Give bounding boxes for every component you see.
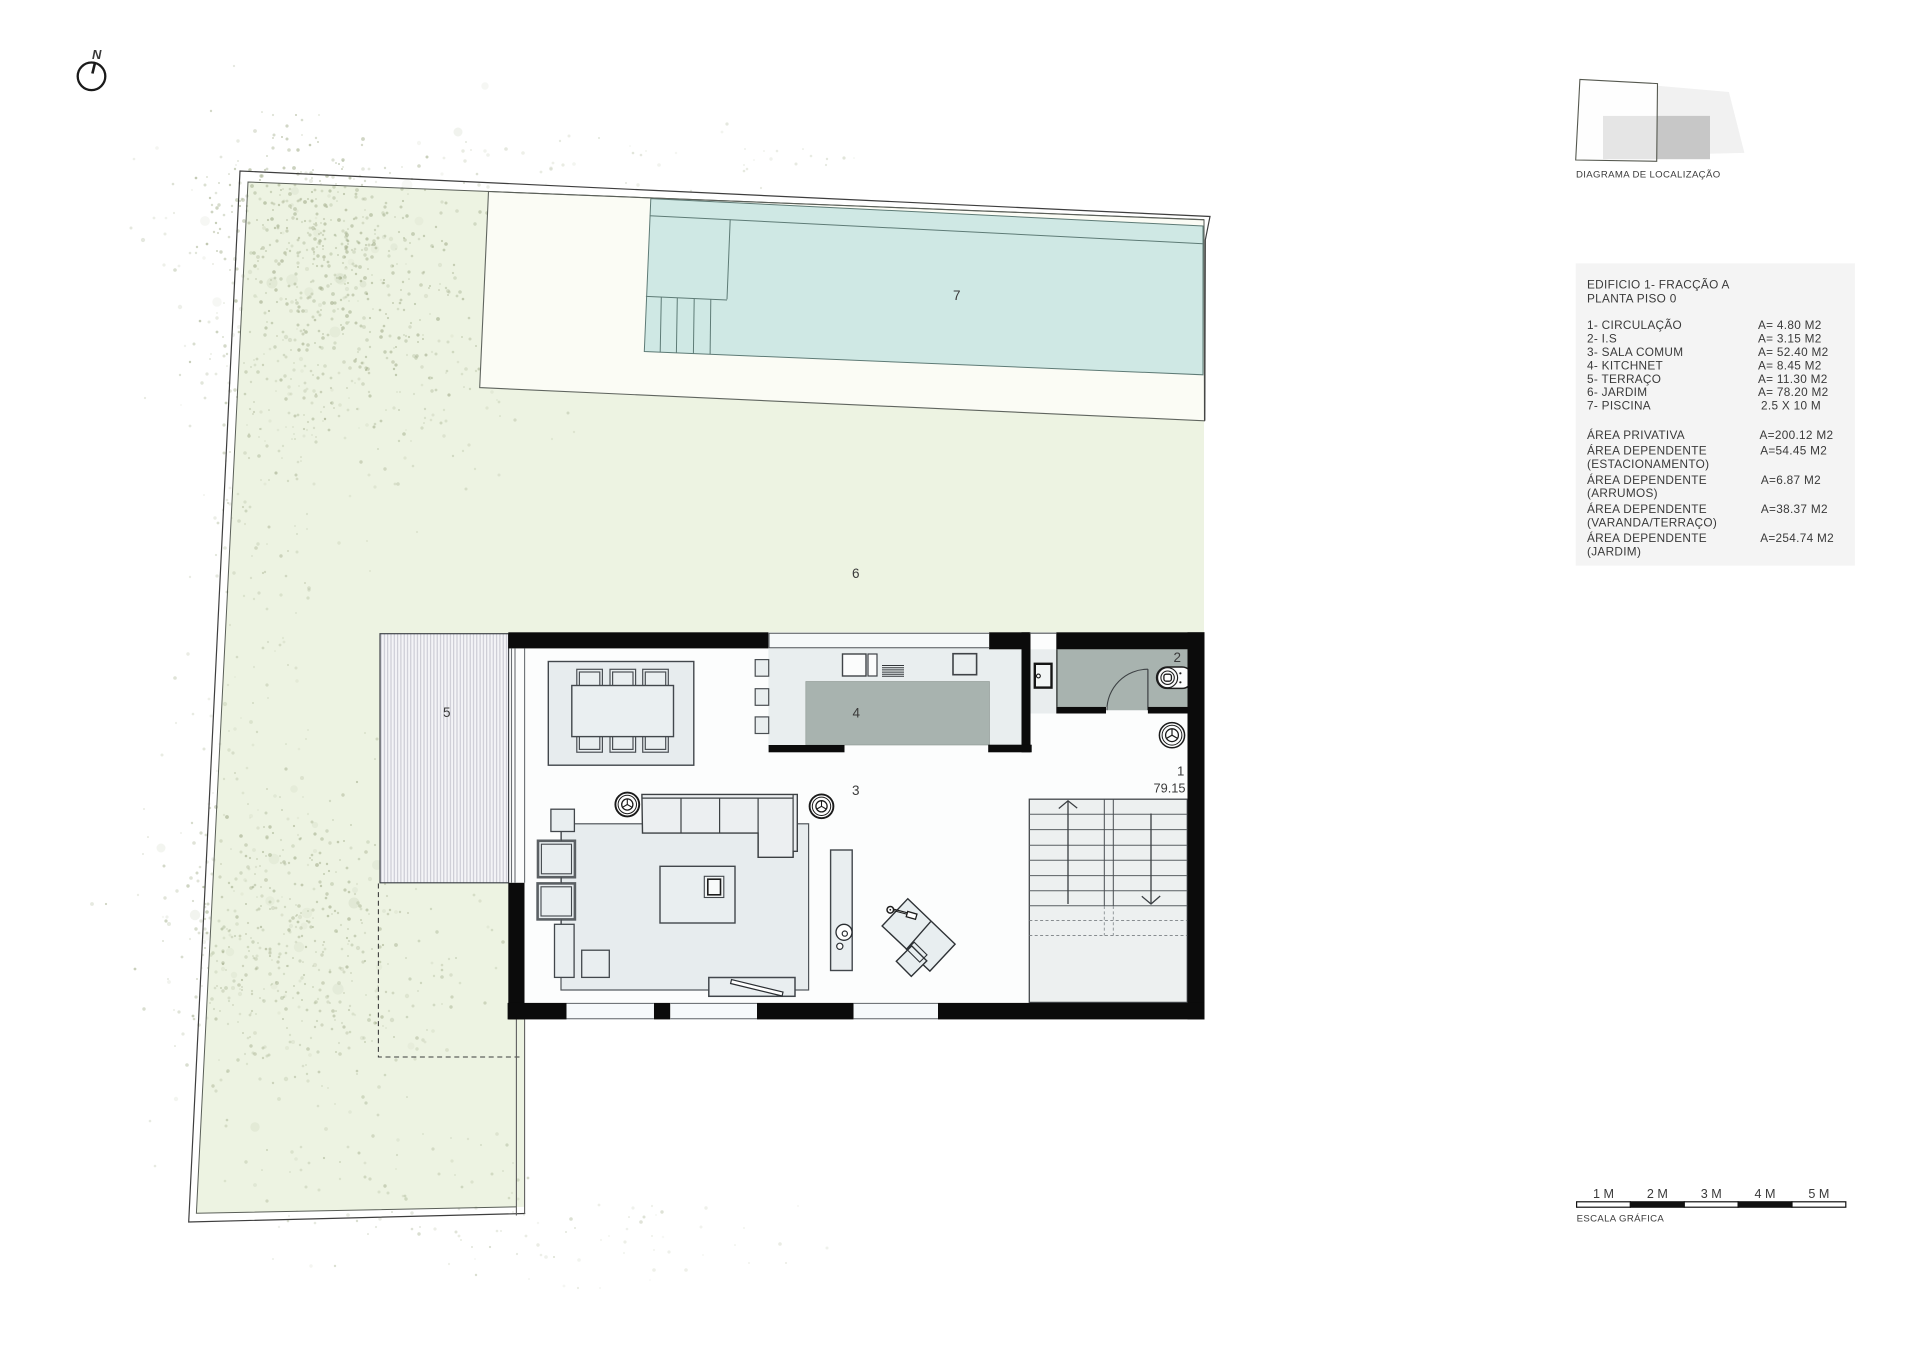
- svg-text:2: 2: [1174, 650, 1182, 665]
- svg-text:(ESTACIONAMENTO): (ESTACIONAMENTO): [1587, 457, 1709, 471]
- svg-text:6: 6: [852, 566, 860, 581]
- svg-text:N: N: [92, 47, 102, 62]
- svg-text:EDIFICIO 1- FRACÇÃO A: EDIFICIO 1- FRACÇÃO A: [1587, 278, 1730, 292]
- svg-text:5 M: 5 M: [1808, 1187, 1829, 1201]
- svg-text:A= 52.40 M2: A= 52.40 M2: [1758, 345, 1829, 359]
- svg-text:2- I.S: 2- I.S: [1587, 332, 1617, 346]
- svg-text:ESCALA GRÁFICA: ESCALA GRÁFICA: [1577, 1214, 1665, 1225]
- svg-text:A= 4.80 M2: A= 4.80 M2: [1758, 318, 1822, 332]
- svg-text:2 M: 2 M: [1647, 1187, 1668, 1201]
- svg-text:(VARANDA/TERRAÇO): (VARANDA/TERRAÇO): [1587, 515, 1717, 529]
- svg-text:DIAGRAMA DE LOCALIZAÇÃO: DIAGRAMA DE LOCALIZAÇÃO: [1576, 170, 1721, 181]
- svg-text:2.5 X 10 M: 2.5 X 10 M: [1761, 399, 1821, 413]
- svg-text:ÁREA DEPENDENTE: ÁREA DEPENDENTE: [1587, 531, 1707, 545]
- svg-text:1 M: 1 M: [1593, 1187, 1614, 1201]
- svg-text:79.15: 79.15: [1153, 780, 1185, 795]
- svg-text:ÁREA DEPENDENTE: ÁREA DEPENDENTE: [1587, 473, 1707, 487]
- svg-text:A=200.12 M2: A=200.12 M2: [1760, 428, 1834, 442]
- svg-text:A=254.74 M2: A=254.74 M2: [1760, 531, 1834, 545]
- svg-text:PLANTA PISO 0: PLANTA PISO 0: [1587, 292, 1677, 306]
- svg-text:4: 4: [853, 706, 861, 721]
- svg-text:7: 7: [953, 288, 961, 303]
- svg-text:5: 5: [443, 705, 451, 720]
- svg-text:3- SALA COMUM: 3- SALA COMUM: [1587, 345, 1683, 359]
- svg-text:A= 8.45 M2: A= 8.45 M2: [1758, 358, 1822, 372]
- svg-text:ÁREA DEPENDENTE: ÁREA DEPENDENTE: [1587, 444, 1707, 458]
- svg-text:ÁREA PRIVATIVA: ÁREA PRIVATIVA: [1587, 428, 1685, 442]
- svg-text:A= 11.30 M2: A= 11.30 M2: [1758, 372, 1828, 386]
- svg-text:A= 78.20 M2: A= 78.20 M2: [1758, 385, 1829, 399]
- svg-text:7- PISCINA: 7- PISCINA: [1587, 399, 1651, 413]
- svg-text:ÁREA DEPENDENTE: ÁREA DEPENDENTE: [1587, 502, 1707, 516]
- svg-text:(JARDIM): (JARDIM): [1587, 545, 1641, 559]
- svg-text:1: 1: [1177, 764, 1184, 779]
- svg-text:3 M: 3 M: [1701, 1187, 1722, 1201]
- svg-text:4- KITCHNET: 4- KITCHNET: [1587, 358, 1663, 372]
- svg-text:4 M: 4 M: [1755, 1187, 1776, 1201]
- svg-text:A=38.37 M2: A=38.37 M2: [1761, 502, 1828, 516]
- svg-text:3: 3: [852, 783, 860, 798]
- svg-text:(ARRUMOS): (ARRUMOS): [1587, 486, 1658, 500]
- svg-text:6- JARDIM: 6- JARDIM: [1587, 385, 1647, 399]
- svg-text:A=6.87 M2: A=6.87 M2: [1761, 473, 1821, 487]
- svg-text:1- CIRCULAÇÃO: 1- CIRCULAÇÃO: [1587, 318, 1682, 332]
- svg-text:A=54.45 M2: A=54.45 M2: [1760, 444, 1827, 458]
- svg-text:A= 3.15 M2: A= 3.15 M2: [1758, 332, 1822, 346]
- svg-text:5- TERRAÇO: 5- TERRAÇO: [1587, 372, 1661, 386]
